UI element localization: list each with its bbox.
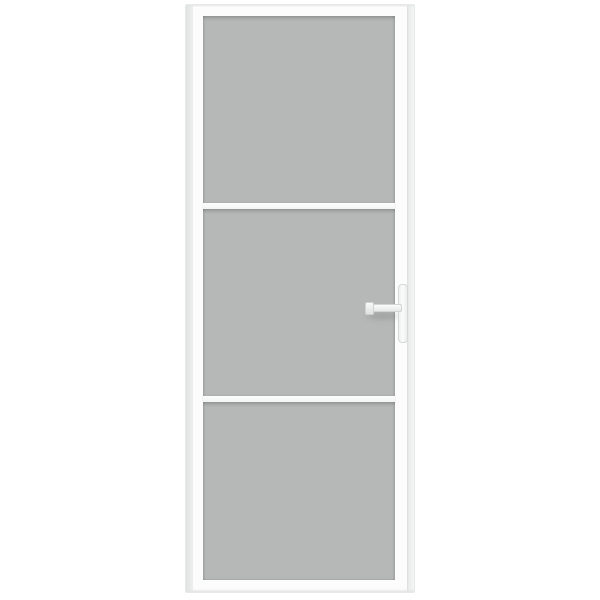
door-bottom-edge-shading	[186, 589, 414, 592]
handle-lever-end	[365, 302, 374, 315]
frosted-glass-panel-top	[203, 16, 395, 203]
door-left-edge-shading	[186, 5, 193, 592]
frosted-glass-panel-bottom	[203, 402, 395, 580]
product-photo	[0, 0, 600, 600]
door	[185, 4, 415, 593]
handle-backplate	[398, 284, 408, 343]
door-top-edge-shading	[186, 5, 414, 7]
door-glazing	[203, 16, 395, 580]
door-right-edge-shading	[407, 5, 414, 592]
